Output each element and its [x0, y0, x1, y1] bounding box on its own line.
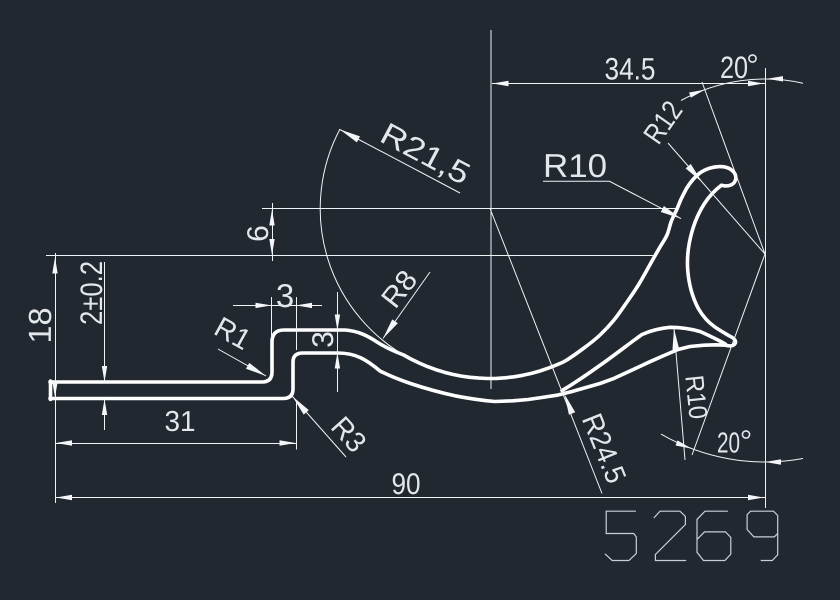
svg-text:R10: R10 [679, 374, 713, 421]
svg-text:34.5: 34.5 [604, 51, 655, 86]
svg-text:3: 3 [276, 277, 294, 314]
svg-text:6: 6 [242, 225, 275, 242]
svg-text:R10: R10 [543, 147, 607, 184]
svg-text:20: 20 [720, 50, 748, 85]
svg-text:31: 31 [164, 406, 195, 438]
svg-text:18: 18 [22, 307, 58, 343]
svg-text:2±0.2: 2±0.2 [74, 261, 109, 325]
svg-text:90: 90 [391, 468, 420, 501]
svg-text:3: 3 [307, 331, 340, 348]
svg-text:20: 20 [717, 427, 740, 459]
